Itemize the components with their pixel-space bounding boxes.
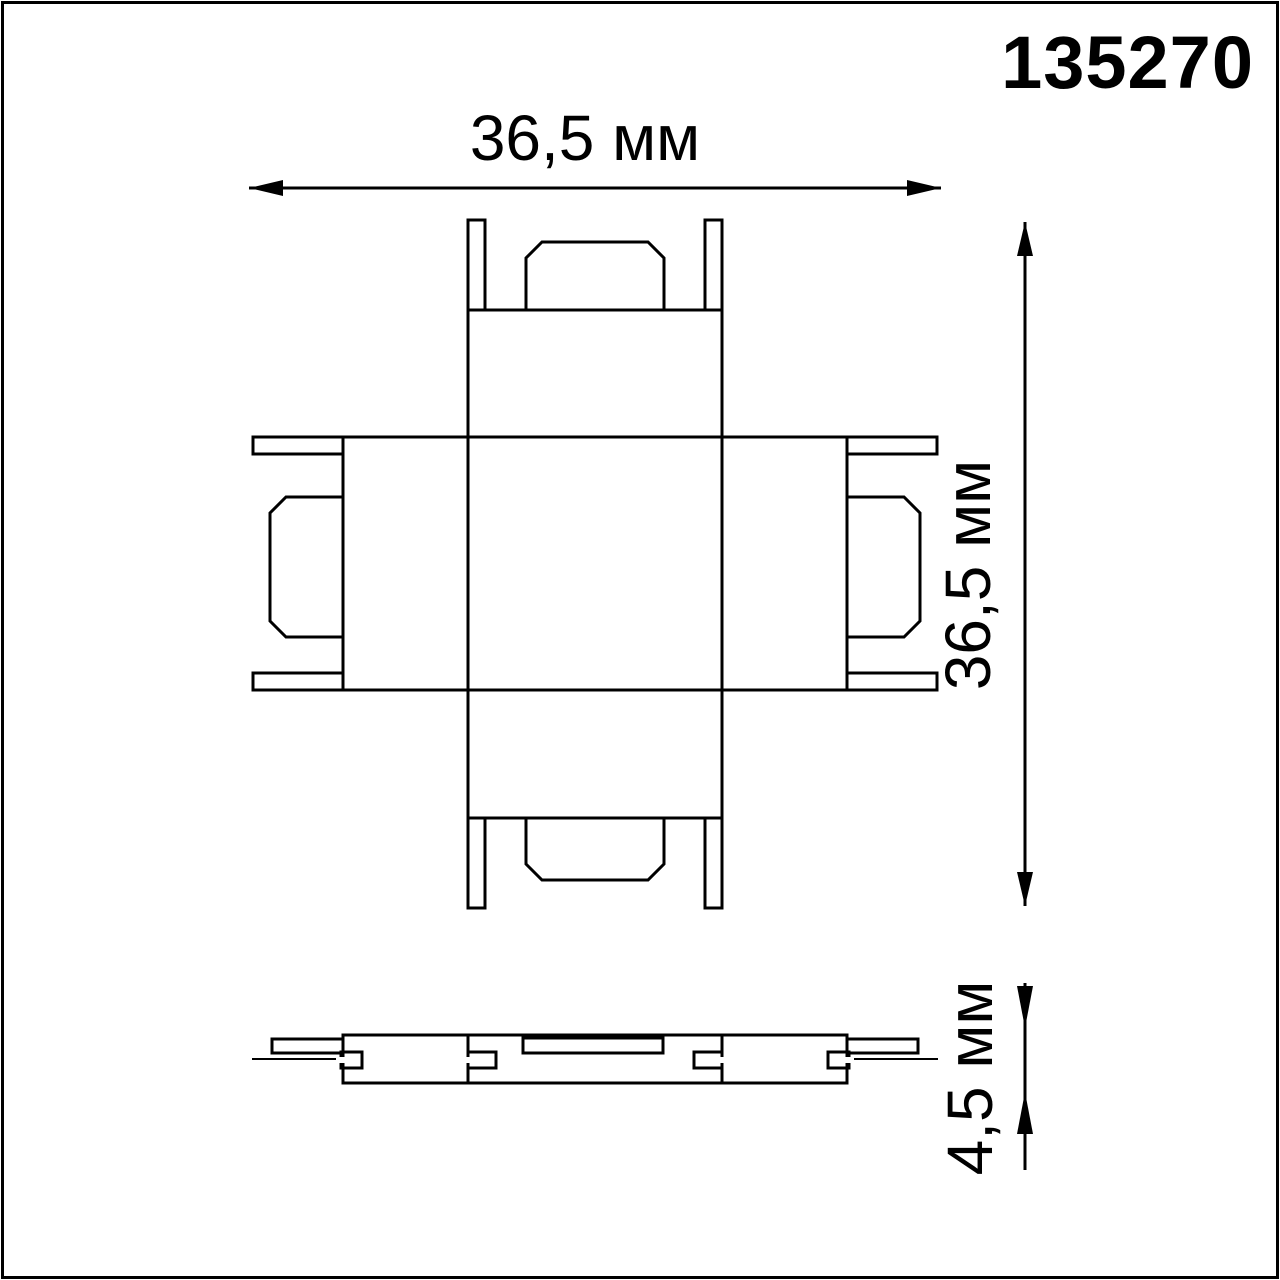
drawing-sheet: 135270 36,5 мм 36,5 мм 4,5 мм bbox=[0, 0, 1280, 1280]
sheet-border bbox=[1, 1, 1279, 1279]
